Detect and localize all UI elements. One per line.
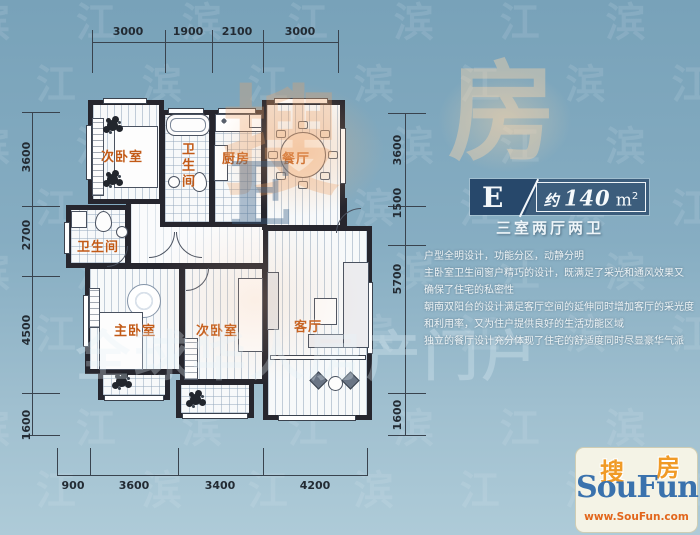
sofa-icon [343,262,369,348]
dim-top-1: 3000 [105,25,151,39]
dim-top-4: 3000 [277,25,323,39]
window-icon [104,395,164,401]
window-icon [274,98,328,104]
chair-icon [328,151,338,159]
chair-icon [320,130,330,138]
bathtub-icon [166,114,210,136]
dim-left-3: 4500 [20,310,34,350]
plant-icon [107,120,118,131]
dim-right-3: 5700 [391,259,405,299]
logo-soufun-text: SouFun [576,470,697,505]
unit-layout-text: 三室两厅两卫 [496,217,604,238]
label-bathroom-top: 卫生间 [177,142,196,190]
unit-letter: E [482,181,503,214]
plant-icon [107,174,118,185]
dim-bottom-3: 3400 [197,479,243,493]
dim-bottom-2: 3600 [111,479,157,493]
window-icon [103,98,147,104]
description-line: 朝南双阳台的设计满足客厅空间的延伸同时增加客厅的采光度 [424,299,694,316]
chair-icon [268,151,278,159]
area-number: 140 [564,185,611,210]
chair-icon [320,172,330,180]
description-line: 和利用率，又为住户提供良好的生活功能区域 [424,316,694,333]
description-line: 确保了住宅的私密性 [424,282,694,299]
description-line: 独立的餐厅设计充分体现了住宅的舒适度同时尽显豪华气派 [424,333,694,350]
chair-icon [276,172,286,180]
area-superscript: 2 [632,191,638,202]
watermark-fang-glyph: 房 [448,60,556,168]
label-master-bedroom: 主卧室 [114,320,156,339]
window-icon [182,413,248,419]
dim-top-3: 2100 [214,25,260,39]
window-icon [278,415,356,421]
toilet-icon [95,211,112,232]
balcony-divider-window-icon [270,355,366,360]
label-kitchen: 厨房 [222,148,250,167]
chair-icon [276,130,286,138]
fridge-icon [249,114,262,128]
balcony-table-icon [328,376,343,391]
tv-cabinet-icon [267,272,279,330]
washer-icon [71,211,87,228]
dim-bottom-1: 900 [50,479,96,493]
dim-right-4: 1600 [391,395,405,435]
area-unit: m [616,190,632,210]
unit-area: 约 140 m2 [536,182,646,212]
window-icon [340,128,346,184]
soufun-logo: 搜 房 SouFun www.SouFun.com [575,447,698,533]
label-dining: 餐厅 [282,148,310,167]
approx-char: 约 [544,191,559,209]
dim-left-1: 3600 [20,137,34,177]
description-line: 户型全明设计，功能分区，动静分明 [424,248,694,265]
plant-icon [116,376,127,387]
logo-url-text: www.SouFun.com [576,511,697,523]
unit-description: 户型全明设计，功能分区，动静分明 主卧室卫生间窗户精巧的设计，既满足了采光和通风… [424,248,694,350]
bed-icon [238,278,263,352]
label-living: 客厅 [294,316,322,335]
dim-right-2: 1500 [391,183,405,223]
wardrobe-icon [89,288,100,328]
dim-bottom-4: 4200 [292,479,338,493]
chair-icon [298,121,308,129]
floorplan-image: 滨 江 滨 江 滨 江 滨 江 滨 江 滨 江 滨 江 滨 江 滨 江 滨 江 … [0,0,700,535]
label-bedroom-top: 次卧室 [101,146,143,165]
chair-icon [298,181,308,189]
dim-top-2: 1900 [165,25,211,39]
dim-right-1: 3600 [391,130,405,170]
dim-left-2: 2700 [20,215,34,255]
label-bathroom-mid: 卫生间 [77,236,119,255]
sofa-icon [308,334,344,348]
description-line: 主卧室卫生间窗户精巧的设计，既满足了采光和通风效果又 [424,265,694,282]
watermark-tile-row: 滨 江 滨 江 滨 江 滨 江 滨 江 滨 江 [0,0,700,48]
label-bedroom-bottom: 次卧室 [196,320,238,339]
unit-badge: E 约 140 m2 [470,179,649,215]
desk-icon [184,338,198,380]
dim-left-4: 1600 [20,405,34,445]
plant-icon [190,394,201,405]
window-icon [64,222,70,254]
